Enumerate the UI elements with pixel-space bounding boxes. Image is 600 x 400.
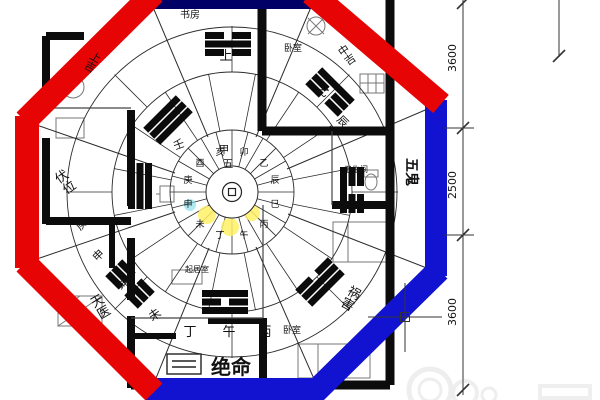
ring-char: 未: [195, 218, 204, 230]
jueming-trigram-icon: [167, 354, 201, 374]
sector-label-jueming: 绝命: [211, 355, 252, 379]
mountain-ren: 壬: [171, 137, 186, 153]
mountain-wu: 午: [222, 325, 235, 340]
mountain-shang: 上: [219, 49, 232, 64]
dimension-lines: [444, 0, 565, 396]
ring-char: 午: [239, 229, 248, 241]
room-label-bathroom: 卫生间: [344, 164, 368, 174]
ring-char: 乙: [259, 158, 268, 169]
ring-char: 丁: [215, 231, 224, 241]
chair-icon: [156, 186, 174, 202]
mountain-yi: 乙: [315, 83, 332, 100]
ring-char: 辰: [270, 175, 279, 186]
mountain-five: 五: [223, 158, 234, 170]
ring-char: 酉: [195, 158, 204, 169]
mountain-shen: 申: [90, 247, 107, 264]
trigram-xun-icon: [295, 257, 344, 306]
desk-icon: [360, 74, 384, 93]
mountain-jia: 甲: [219, 144, 230, 156]
room-label-bedroom-top: 卧室: [284, 42, 302, 54]
ring-char: 丙: [259, 219, 268, 230]
sector-label-fuwei: 伏位: [50, 167, 78, 198]
trigram-li-icon: [202, 290, 248, 314]
mountain-bing: 丙: [258, 325, 271, 340]
ring-char: 申: [183, 198, 192, 210]
fengshui-bagua-floorplan: 卯 乙 辰 巳 丙 午 丁 未 申 庚 酉 亥: [0, 0, 600, 400]
dimension-label-middle: 2500: [446, 171, 459, 199]
ring-char: 庚: [183, 174, 192, 186]
watermark-logo: [409, 369, 590, 400]
dimension-labels: 3600 2500 3600: [446, 44, 459, 326]
room-label-living: 起居室: [185, 264, 209, 274]
sector-label-wugui: 五鬼: [403, 158, 420, 186]
dimension-label-top: 3600: [446, 44, 459, 72]
room-label-bedroom-bottom: 卧室: [283, 324, 301, 336]
ring-char: 巳: [270, 199, 279, 210]
dimension-label-bottom: 3600: [446, 298, 459, 326]
compass-center-coin: [206, 166, 258, 218]
room-label-study: 书房: [180, 8, 200, 21]
mountain-ding: 丁: [183, 325, 196, 340]
ring-char: 卯: [239, 147, 248, 158]
coin-square-icon: [229, 189, 236, 196]
fan-icon: [307, 17, 325, 35]
mountain-wei: 未: [146, 306, 164, 324]
